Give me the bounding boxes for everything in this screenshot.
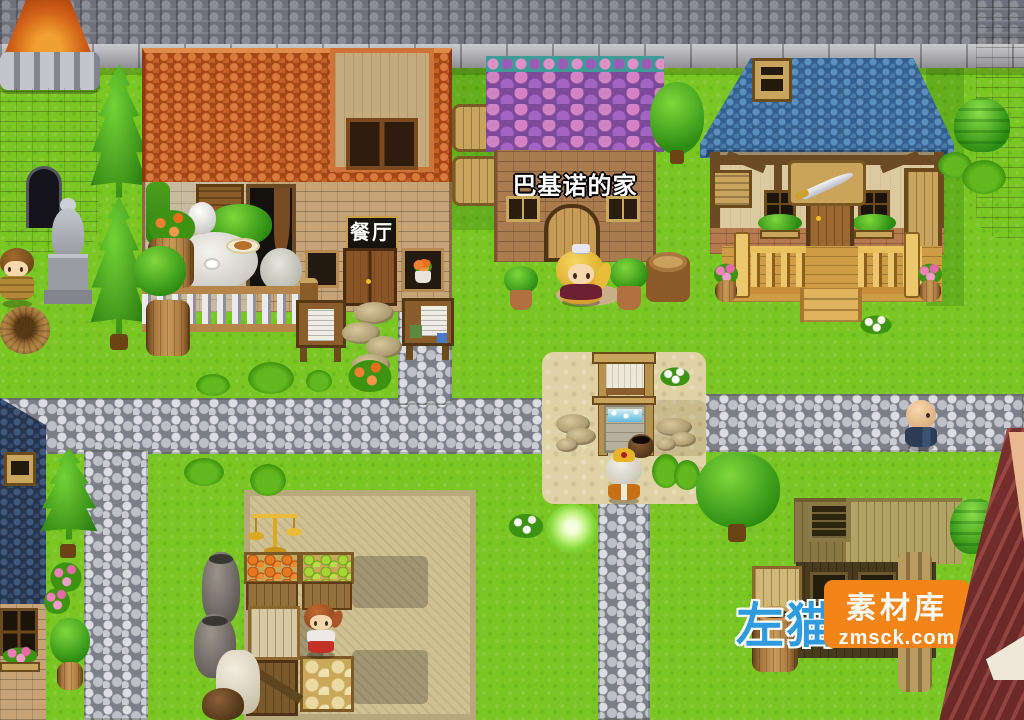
small-pot [202,688,244,720]
villager-gold-crest [613,448,635,462]
bush [134,246,186,296]
well-villager-sprite[interactable] [604,450,644,504]
stepping-stone [354,302,394,324]
game-viewport[interactable]: 餐厅 巴基诺的家 [0,0,1024,720]
restaurant-window-right [402,248,444,292]
child-overalls [308,641,334,653]
jar-mouth [202,616,228,626]
board-chip-blue [437,333,447,343]
stump-top [649,252,687,272]
west-tower-battlement [0,52,100,90]
tree-trunk [728,524,746,542]
green-apples [300,552,354,584]
notice-board[interactable] [296,300,346,362]
porch-flower-pot [916,262,944,304]
plant-pot [617,286,641,310]
board-frame [402,298,454,346]
crate-brace [253,667,304,703]
tree-trunk [670,150,684,164]
weapon-shutter-window [712,170,752,208]
watermark-box[interactable]: 素材库 zmsck.com [824,580,970,648]
barrel [146,300,190,356]
plant-leaves [50,618,90,664]
apple-crate [300,552,354,610]
bajino-roof [486,72,664,152]
princess-face [568,264,594,284]
weapon-house-dormer [752,58,792,102]
potted-plant [50,618,90,692]
path-west [0,398,546,454]
layered-bush [954,98,1010,152]
window-box-planter [0,662,40,672]
soldier-armor [0,276,34,300]
restaurant-dormer-window [346,118,418,170]
woven-basket [0,306,50,354]
child-sprite[interactable] [302,604,340,658]
round-tree [696,452,780,528]
tree-stump [646,256,690,302]
window-box [758,214,802,240]
restaurant-sign[interactable]: 餐厅 [346,216,398,250]
soldier-face [4,261,28,277]
statue [44,198,92,308]
window-box-planter [760,230,800,239]
board-frame [296,300,346,348]
navy-dormer-window [4,452,36,486]
food-plate [226,238,260,254]
clay-jar [202,552,240,624]
dormer-slot [761,67,783,75]
balance-scale [248,508,302,556]
wheat [300,656,354,712]
villager-robe [608,484,640,500]
crate-shadow [352,650,428,704]
sword-sign[interactable] [788,160,866,206]
crest-gem [621,452,627,458]
white-flowers [658,366,692,386]
pink-flowers [42,586,72,614]
board-paper [421,306,447,336]
soldier-sprite[interactable] [0,248,36,306]
door-knob [366,279,371,284]
board-chip-green [410,325,422,338]
bajino-window-right [606,196,640,222]
princess-tiara [572,244,590,253]
wood-stack [452,156,500,206]
grass-tuft [184,458,224,486]
navy-window-box [0,650,40,672]
statue-pedestal [48,254,88,294]
restaurant-sign-text: 餐厅 [348,218,396,248]
door-knob [816,216,821,221]
white-flowers [506,512,546,538]
statue-torso [52,208,84,256]
carrots [244,552,300,584]
jar-mouth [209,554,233,564]
pebble [556,438,578,452]
princess-dress [560,284,602,304]
grass-tuft [248,362,294,394]
path-south-center [598,498,650,720]
watermark-brand: 素材库 [824,583,970,627]
path-south-west [84,450,148,720]
food [234,241,252,250]
child-face [310,615,332,630]
window-box-planter [854,230,894,239]
pebble [656,438,676,451]
flower-pot [919,280,941,302]
carrot-crate [244,552,300,610]
porch-flower-pot [712,262,740,304]
dormer-slot [11,461,29,475]
soldier-eyes [8,267,11,272]
flower-pot [715,280,737,302]
tree-trunk [110,334,128,350]
well-water [608,409,642,422]
notice-board[interactable] [402,298,454,360]
monk-eye [926,413,930,418]
navy-house-roof [0,398,46,608]
north-wall [0,0,1024,46]
grass-tuft [196,374,230,396]
well-canopy [592,352,656,364]
watermark-site: zmsck.com [824,627,970,650]
tree-trunk [60,544,76,558]
grass-tuft [250,464,286,496]
restaurant-door[interactable] [343,248,397,306]
bajino-sign-text[interactable]: 巴基诺的家 [500,166,650,196]
window-flowerpot [415,271,431,283]
well-curtain [606,364,644,390]
statue-base [44,290,92,304]
orange-flowers [346,358,394,392]
sword-blade [800,170,855,201]
dormer-slot [761,79,783,91]
princess-sprite[interactable] [554,244,608,306]
board-paper [308,309,334,341]
princess-eyes [573,273,577,279]
window-box [852,214,896,240]
crate-shadow [352,556,428,608]
child-eyes [314,621,317,626]
plank-crate [248,606,300,660]
teacup [204,258,220,270]
wheat-crate [300,656,354,712]
white-flowers [858,314,894,334]
grass-tuft [962,160,1006,194]
porch-steps [800,288,862,322]
glow-orb[interactable] [546,504,598,554]
monk-head [906,400,936,430]
grass-tuft [306,370,332,392]
pot-mouth [632,436,650,444]
monk-sprite[interactable] [904,400,938,450]
hut-roof-window [808,502,850,542]
monk-robe [905,427,937,447]
plant-pot [57,662,83,690]
path-east [700,394,1024,452]
plant-pot [510,290,532,310]
potted-plant [504,266,538,312]
well-crossbar [592,396,656,405]
potted-plant [610,258,648,312]
round-tree [650,82,704,154]
bajino-window-left [506,196,540,222]
watermark-left-text: 左猫 [736,586,836,656]
well-shelf [606,388,644,395]
